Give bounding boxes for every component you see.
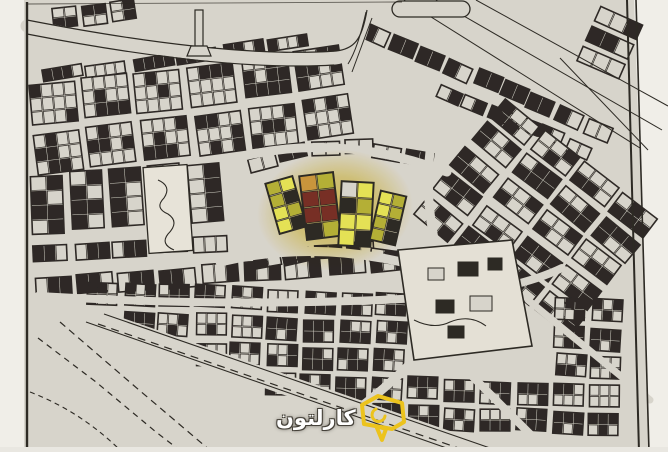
city-plan-map (0, 0, 668, 452)
map-photo: كارلتون (0, 0, 668, 452)
photo-tint (0, 0, 668, 452)
